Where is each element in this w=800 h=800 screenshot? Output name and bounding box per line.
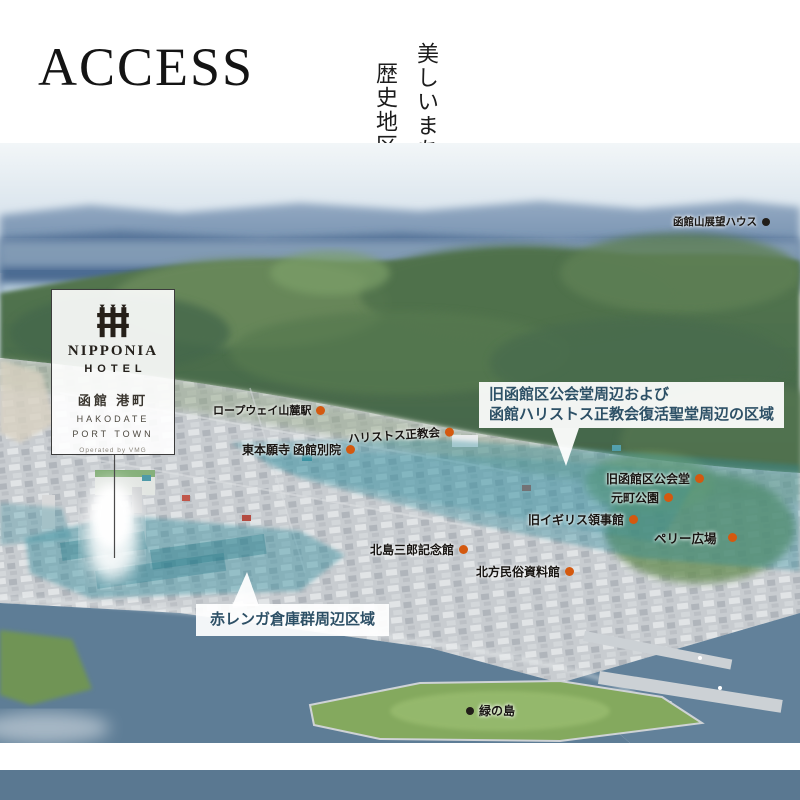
location-dot-icon xyxy=(346,445,355,454)
hotel-brand: NIPPONIA xyxy=(68,343,158,360)
marker-label: ロープウェイ山麓駅 xyxy=(213,402,311,418)
marker-label: 緑の島 xyxy=(479,702,515,719)
marker-label: ペリー広場 xyxy=(654,528,717,547)
callout-public-hall-district: 旧函館区公会堂周辺および 函館ハリストス正教会復活聖堂周辺の区域 xyxy=(479,382,784,428)
marker-label: 東本願寺 函館別院 xyxy=(242,441,341,458)
callout-line: 旧函館区公会堂周辺および xyxy=(489,385,774,405)
footer-bar xyxy=(0,770,800,800)
marker-hakodateyama-view-house: 函館山展望ハウス xyxy=(673,214,770,229)
location-dot-icon xyxy=(565,567,574,576)
marker-motomachi-park: 元町公園 xyxy=(611,489,673,506)
location-dot-icon xyxy=(664,493,673,502)
location-dot-icon xyxy=(728,533,737,542)
location-dot-icon xyxy=(445,427,455,437)
marker-kitajima-saburo-museum: 北島三郎記念館 xyxy=(370,541,468,558)
callout-red-brick-warehouse-district: 赤レンガ倉庫群周辺区域 xyxy=(196,604,389,636)
location-dot-icon xyxy=(762,218,770,226)
hotel-brand-sub: HOTEL xyxy=(79,363,146,375)
marker-perry-plaza: ペリー広場 xyxy=(654,528,737,547)
marker-label: 旧函館区公会堂 xyxy=(606,470,690,487)
access-page: ACCESS 美しいまちなみが広がる 歴史地区の中心を旅の拠点に xyxy=(0,0,800,800)
hotel-name-jp: 函館 港町 xyxy=(78,390,148,409)
marker-label: 旧イギリス領事館 xyxy=(528,511,624,528)
hotel-operator: Operated by VMG xyxy=(79,447,146,454)
location-dot-icon xyxy=(459,545,468,554)
marker-label: 元町公園 xyxy=(611,489,659,506)
location-dot-icon xyxy=(629,515,638,524)
callout-line: 赤レンガ倉庫群周辺区域 xyxy=(210,610,375,630)
location-dot-icon xyxy=(695,474,704,483)
location-dot-icon xyxy=(316,406,325,415)
marker-label: 北方民俗資料館 xyxy=(476,563,560,580)
page-title: ACCESS xyxy=(38,36,254,98)
hotel-name-en-1: HAKODATE xyxy=(77,414,150,424)
marker-old-public-hall: 旧函館区公会堂 xyxy=(606,470,704,487)
marker-label: 北島三郎記念館 xyxy=(370,541,454,558)
hotel-logo-card: NIPPONIA HOTEL 函館 港町 HAKODATE PORT TOWN … xyxy=(51,289,175,455)
nipponia-gate-icon xyxy=(94,303,132,338)
location-dot-icon xyxy=(466,707,474,715)
hotel-name-en-2: PORT TOWN xyxy=(72,429,153,439)
marker-midori-island: 緑の島 xyxy=(466,702,515,719)
marker-higashi-honganji: 東本願寺 函館別院 xyxy=(242,441,355,458)
callout-line: 函館ハリストス正教会復活聖堂周辺の区域 xyxy=(489,405,774,425)
marker-label: 函館山展望ハウス xyxy=(673,214,757,229)
marker-ropeway-station: ロープウェイ山麓駅 xyxy=(213,402,325,418)
marker-british-consulate: 旧イギリス領事館 xyxy=(528,511,638,528)
marker-northern-peoples-museum: 北方民俗資料館 xyxy=(476,563,574,580)
